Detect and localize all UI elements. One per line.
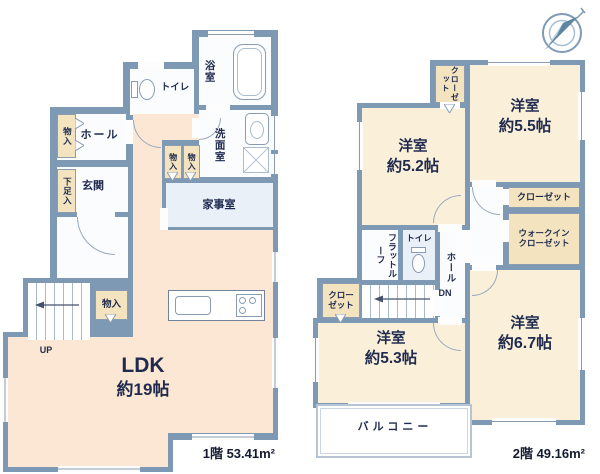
bathtub-inner xyxy=(237,48,262,96)
bed52-size: 約5.2帖 xyxy=(365,157,461,177)
label-utility: 家事室 xyxy=(172,198,266,212)
walk-in-closet: ウォークインクローゼット xyxy=(508,213,580,265)
door-opening-washroom xyxy=(192,118,199,138)
washbasin-icon xyxy=(245,113,269,145)
door-opening-closet-mid xyxy=(501,189,509,205)
label-balcony: バルコニー xyxy=(340,420,450,434)
toilet-tank-2f-icon xyxy=(411,247,426,253)
opening-hall-landing xyxy=(463,230,472,263)
label-bed55: 洋室 約5.5帖 xyxy=(477,98,573,137)
closet-b-label: 物入 xyxy=(187,153,196,171)
closet-a-label: 物入 xyxy=(168,153,177,171)
north-compass-icon xyxy=(536,6,588,58)
door-fold-mark xyxy=(105,314,116,323)
stairs-1f xyxy=(28,283,90,340)
ldk-name: LDK xyxy=(88,352,198,379)
closet-left-label: クローゼット xyxy=(328,291,354,311)
closet-left: クローゼット xyxy=(322,283,360,318)
label-hall-1f: ホール xyxy=(72,128,128,142)
toilet-tank-1f-icon xyxy=(131,81,138,98)
label-up: UP xyxy=(33,345,59,357)
window-washroom-right xyxy=(271,116,278,150)
label-hall-2f: ホール xyxy=(443,245,455,291)
closet-hall-label: 物入 xyxy=(62,127,72,146)
label-toilet-2f: トイレ xyxy=(402,233,436,244)
label-bath: 浴室 xyxy=(202,50,216,92)
closet-mid-label: クローゼット xyxy=(517,192,571,202)
bed55-size: 約5.5帖 xyxy=(477,117,573,137)
stairs-up-arrow xyxy=(33,299,81,311)
closet-left-line2: ゼット xyxy=(328,301,354,311)
label-bed53: 洋室 約5.3帖 xyxy=(343,330,439,369)
window-bed55-right xyxy=(578,92,585,140)
bed52-name: 洋室 xyxy=(365,138,461,157)
window-ldk-bottom-right xyxy=(192,434,254,440)
closet-top-label: クローゼット xyxy=(441,66,459,102)
bed55-name: 洋室 xyxy=(477,98,573,117)
label-floor1-area: 1階 53.41m² xyxy=(180,443,275,462)
label-dn: DN xyxy=(433,288,457,300)
label-ldk: LDK 約19帖 xyxy=(88,352,198,401)
wic-label: ウォークインクローゼット xyxy=(518,229,569,249)
window-ldk-bottom-left xyxy=(58,466,140,472)
wic-line2: クローゼット xyxy=(518,239,569,249)
door-fold-mark xyxy=(335,314,346,323)
bed53-name: 洋室 xyxy=(343,330,439,349)
kitchen-sink-icon xyxy=(175,296,211,315)
door-opening-bath xyxy=(206,104,230,111)
label-flat-roof: フラットルーフ xyxy=(363,231,397,279)
door-fold-mark xyxy=(167,172,178,181)
closet-top: クローゼット xyxy=(435,65,465,103)
window-bed53-left xyxy=(312,338,319,382)
door-opening-utility xyxy=(160,208,168,230)
toilet-bowl-1f-icon xyxy=(139,79,155,100)
toilet-bowl-2f-icon xyxy=(412,254,425,273)
label-toilet-1f: トイレ xyxy=(155,82,195,94)
label-floor2-area: 2階 49.16m² xyxy=(490,443,585,462)
bed67-name: 洋室 xyxy=(477,315,573,334)
stove-burner-icon xyxy=(239,307,246,314)
closet-shoe-label: 下足入 xyxy=(62,177,72,206)
door-opening-toilet-1f xyxy=(138,61,164,70)
door-opening-wic xyxy=(501,220,509,242)
window-bed55-top xyxy=(488,59,550,66)
label-bed52: 洋室 約5.2帖 xyxy=(365,138,461,177)
window-bath-top xyxy=(208,31,254,38)
window-ldk-left xyxy=(2,378,8,422)
wall-entrance-stub-right xyxy=(115,212,128,217)
door-fold-mark xyxy=(444,104,455,113)
window-ldk-right xyxy=(272,338,278,388)
closet-top-line1: クロー xyxy=(450,66,459,93)
ldk-size: 約19帖 xyxy=(88,379,198,401)
stairs-down-arrow xyxy=(372,293,432,305)
window-bed52-left xyxy=(356,122,363,170)
closet-mid: クローゼット xyxy=(508,187,580,208)
window-ldk-right-upper xyxy=(272,252,278,282)
washbasin-bowl xyxy=(250,121,264,139)
label-washroom: 洗面室 xyxy=(212,117,226,173)
bed53-size: 約5.3帖 xyxy=(343,349,439,369)
door-fold-mark xyxy=(185,172,196,181)
label-entrance: 玄関 xyxy=(71,179,115,193)
bed67-size: 約6.7帖 xyxy=(477,334,573,355)
closet-ldk-label: 物入 xyxy=(102,300,121,311)
window-bed67-right xyxy=(578,318,585,370)
floor-plan: 物入 下足入 物入 物入 物入 浴室 トイレ 洗面室 ホール 玄関 家事室 UP… xyxy=(0,0,600,474)
window-bed67-bottom xyxy=(492,418,556,425)
stove-burner-icon xyxy=(239,297,246,304)
bathtub-icon xyxy=(233,44,266,100)
window-utility-right xyxy=(271,154,278,174)
washing-machine-icon xyxy=(243,147,269,173)
flat-roof-line1: フラット xyxy=(387,233,397,269)
stove-burner-icon xyxy=(249,297,256,304)
label-bed67: 洋室 約6.7帖 xyxy=(477,315,573,355)
door-opening-bed52 xyxy=(438,224,462,232)
